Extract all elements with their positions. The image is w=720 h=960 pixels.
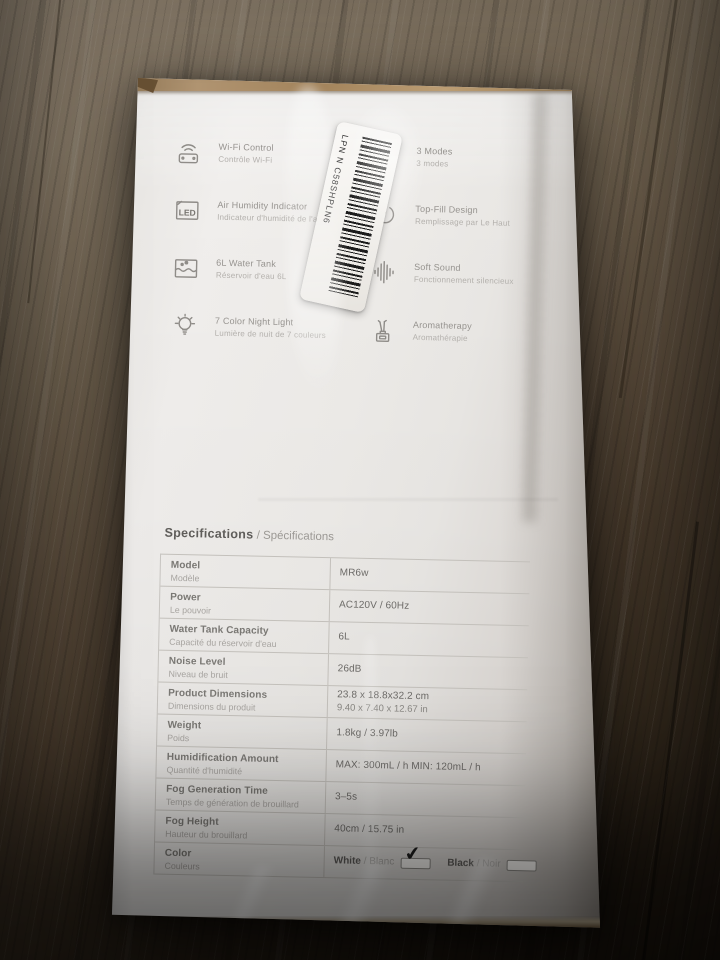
photo-vignette — [0, 0, 720, 960]
photo-scene: Wi-Fi ControlContrôle Wi-FiLEDAir Humidi… — [0, 0, 720, 960]
